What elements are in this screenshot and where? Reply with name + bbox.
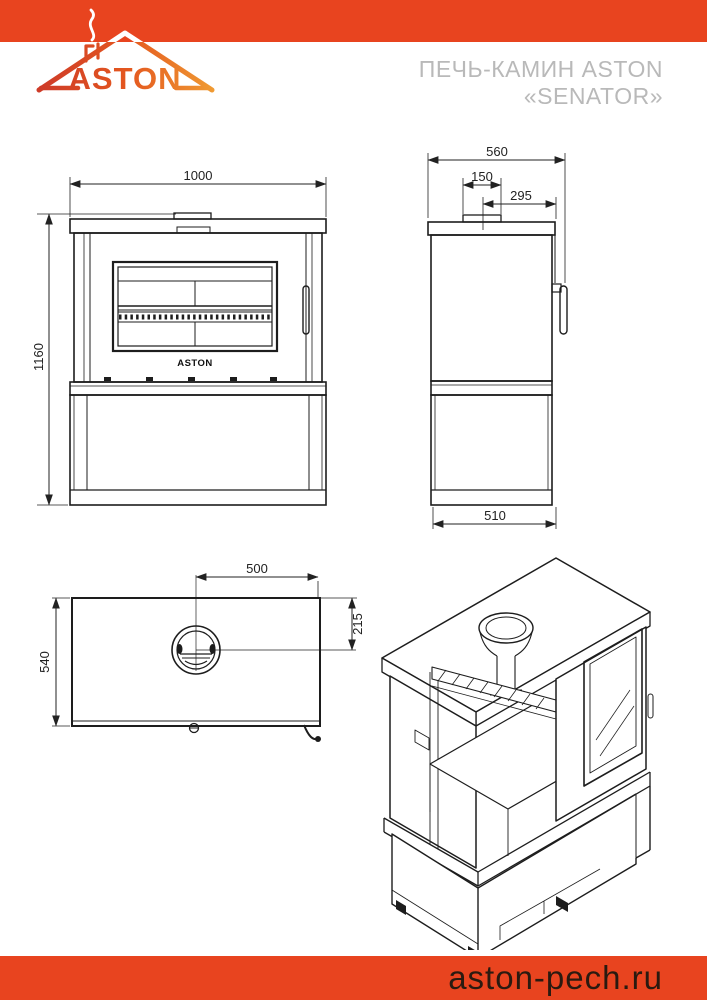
dim-top-flue-offset: 500	[246, 561, 268, 576]
side-view-drawing: 560 150 295 510	[400, 140, 610, 540]
dim-side-depth: 560	[486, 144, 508, 159]
dim-side-base-depth: 510	[484, 508, 506, 523]
page-title: ПЕЧЬ-КАМИН ASTON «SENATOR»	[419, 56, 663, 110]
iso-foot	[556, 896, 568, 912]
side-door-handle	[560, 286, 567, 334]
iso-view-drawing	[370, 550, 705, 950]
dim-top-flue-depth: 215	[350, 613, 365, 635]
side-dimensions	[428, 153, 565, 529]
dim-side-flue-collar: 150	[471, 169, 493, 184]
title-line-2: «SENATOR»	[419, 83, 663, 110]
front-dimensions	[37, 177, 326, 505]
dim-top-depth: 540	[37, 651, 52, 673]
iso-door-handle	[648, 694, 653, 718]
dim-side-flue-to-front: 295	[510, 188, 532, 203]
front-view-drawing: 1000 1160	[10, 148, 360, 542]
top-stove-outline	[72, 598, 321, 742]
site-url: aston-pech.ru	[448, 956, 663, 1000]
title-line-1: ПЕЧЬ-КАМИН ASTON	[419, 56, 663, 83]
side-stove-outline	[428, 215, 567, 505]
door-brand-logo: ASTON	[177, 358, 213, 369]
door-hinge-tabs	[104, 377, 277, 381]
dim-front-width: 1000	[184, 168, 213, 183]
brand-logo: ASTON	[18, 0, 228, 105]
logo-text: ASTON	[69, 61, 182, 96]
dim-front-height: 1160	[31, 343, 46, 371]
drawing-sheet: ASTON ПЕЧЬ-КАМИН ASTON «SENATOR» 1000 11…	[0, 0, 707, 1000]
flue-collar	[463, 215, 501, 222]
top-view-drawing: 500 215 540	[30, 555, 370, 760]
